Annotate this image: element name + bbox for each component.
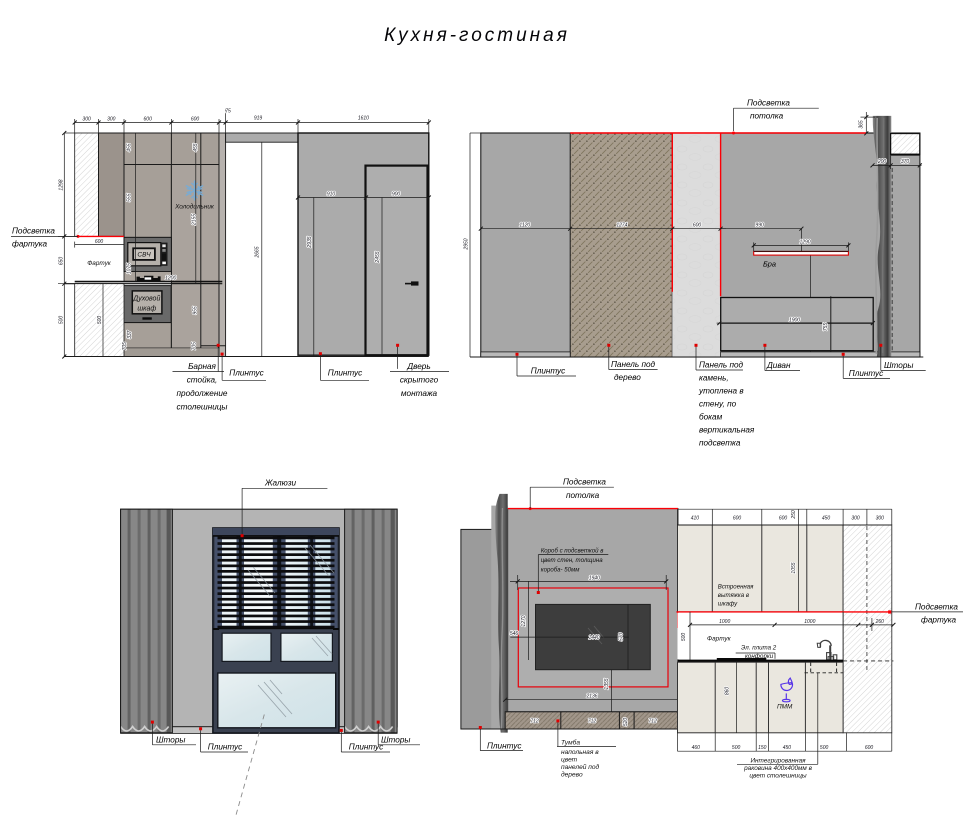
svg-text:камень,: камень, [699,373,729,382]
svg-text:2455: 2455 [375,251,381,263]
svg-text:шкаф: шкаф [137,306,156,313]
svg-text:2950: 2950 [464,238,470,250]
svg-text:365: 365 [859,120,865,129]
svg-text:1298: 1298 [59,179,65,190]
svg-text:600: 600 [733,516,742,522]
svg-text:250: 250 [791,510,797,520]
svg-text:стойка,: стойка, [187,376,218,385]
svg-text:1355: 1355 [604,678,610,689]
svg-text:Тумба: Тумба [561,738,580,746]
svg-text:300: 300 [851,516,860,522]
svg-text:раковина 400х400мм в: раковина 400х400мм в [743,765,812,772]
svg-text:2935: 2935 [307,236,313,248]
svg-text:Плинтус: Плинтус [849,369,883,378]
svg-text:дерево: дерево [614,373,641,382]
svg-text:Плинтус: Плинтус [208,743,242,752]
svg-text:потолка: потолка [566,491,600,500]
svg-text:1290: 1290 [799,240,810,246]
svg-text:утоплена в: утоплена в [698,386,744,395]
svg-text:Дверь: Дверь [406,362,430,371]
svg-text:300: 300 [107,116,116,122]
svg-text:2155: 2155 [192,214,198,226]
svg-text:напольная в: напольная в [561,749,599,756]
svg-text:370: 370 [901,159,910,165]
svg-text:260: 260 [875,619,885,625]
svg-text:650: 650 [59,257,65,266]
svg-text:Фартук: Фартук [707,636,732,643]
svg-text:дерево: дерево [561,770,583,778]
svg-text:860: 860 [725,687,731,696]
svg-text:панелей под: панелей под [561,763,600,771]
svg-text:410: 410 [691,516,700,522]
svg-text:Плинтус: Плинтус [531,367,565,376]
svg-text:Панель под: Панель под [699,360,744,369]
svg-text:Интегрированная: Интегрированная [750,757,806,764]
svg-text:570: 570 [619,633,625,642]
svg-text:Подсветка: Подсветка [12,227,55,236]
svg-text:1940: 1940 [589,575,600,581]
svg-text:Плинтус: Плинтус [487,741,521,750]
svg-text:2665: 2665 [255,246,261,258]
svg-text:455: 455 [193,143,199,152]
svg-text:150: 150 [758,745,767,751]
svg-text:Барная: Барная [188,362,216,371]
svg-text:1270: 1270 [521,615,527,626]
svg-text:цвет стен, толщина: цвет стен, толщина [541,557,604,564]
svg-text:600: 600 [779,516,788,522]
svg-text:712: 712 [530,718,539,724]
svg-text:цвет столешницы: цвет столешницы [749,772,806,779]
svg-text:Плинтус: Плинтус [328,369,362,378]
svg-text:600: 600 [865,745,874,751]
svg-text:бокам: бокам [699,412,723,421]
svg-text:Панель под: Панель под [611,360,656,369]
svg-text:вертикальная: вертикальная [699,425,755,434]
svg-text:фартука: фартука [921,616,957,625]
svg-text:1610: 1610 [358,116,369,122]
svg-text:500: 500 [97,316,103,325]
svg-text:продолжение: продолжение [177,389,228,398]
svg-text:1274: 1274 [616,223,627,229]
svg-text:Шторы: Шторы [884,361,913,370]
svg-text:500: 500 [732,745,741,751]
svg-text:шкафу: шкафу [718,600,738,607]
svg-text:1055: 1055 [791,562,797,573]
svg-text:потолка: потолка [750,112,784,121]
svg-text:ПММ: ПММ [777,703,793,710]
svg-text:600: 600 [191,116,200,122]
svg-text:1000: 1000 [719,619,730,625]
svg-text:712: 712 [649,718,658,724]
svg-text:2136: 2136 [585,694,597,700]
svg-text:Жалюзи: Жалюзи [264,479,297,488]
svg-text:цвет: цвет [561,756,578,763]
svg-text:Фартук: Фартук [87,260,112,267]
svg-text:Диван: Диван [766,361,791,370]
svg-text:900: 900 [392,192,401,198]
svg-text:705: 705 [122,342,128,351]
svg-text:500: 500 [820,745,829,751]
svg-text:500: 500 [59,316,65,325]
svg-text:столешницы: столешницы [177,403,228,412]
svg-text:546: 546 [510,631,519,637]
svg-text:Кухня-гостиная: Кухня-гостиная [384,25,570,46]
svg-text:600: 600 [144,116,153,122]
svg-text:955: 955 [192,306,198,315]
svg-text:1000: 1000 [804,619,815,625]
svg-text:1120: 1120 [519,223,530,229]
svg-text:555: 555 [127,193,133,202]
svg-text:200: 200 [877,159,887,165]
svg-text:подсветка: подсветка [699,438,741,447]
svg-text:СВЧ: СВЧ [137,252,151,259]
svg-text:Шторы: Шторы [381,735,410,744]
svg-text:вытяжка в: вытяжка в [718,592,749,599]
svg-text:Встроенная: Встроенная [718,584,754,591]
svg-text:337: 337 [127,330,133,339]
svg-text:монтажа: монтажа [401,389,438,398]
svg-text:стену, по: стену, по [699,399,737,408]
svg-text:712: 712 [588,718,597,724]
svg-text:Подсветка: Подсветка [915,602,958,611]
svg-text:455: 455 [127,143,133,152]
svg-text:Духовой: Духовой [132,295,160,303]
svg-text:705: 705 [192,342,198,351]
svg-text:Подсветка: Подсветка [747,98,790,107]
svg-text:75: 75 [225,109,231,115]
svg-text:755: 755 [823,323,829,332]
svg-text:919: 919 [254,116,263,122]
svg-text:скрытого: скрытого [400,376,439,385]
svg-text:450: 450 [822,516,831,522]
svg-text:450: 450 [783,745,792,751]
svg-text:1440: 1440 [588,635,599,641]
svg-text:1900: 1900 [789,317,800,323]
svg-text:460: 460 [692,745,701,751]
svg-text:910: 910 [327,192,336,198]
svg-text:500: 500 [681,633,687,642]
svg-text:520: 520 [623,718,629,727]
svg-text:600: 600 [95,239,104,245]
svg-text:Холодильник: Холодильник [174,203,215,211]
svg-text:Эл. плита 2: Эл. плита 2 [741,644,777,651]
svg-text:Подсветка: Подсветка [563,477,606,486]
svg-text:Короб с подсветкой в: Короб с подсветкой в [541,548,604,555]
svg-text:1200: 1200 [165,275,176,281]
svg-text:фартука: фартука [12,239,48,248]
svg-text:600: 600 [693,223,702,229]
svg-text:Плинтус: Плинтус [229,369,263,378]
svg-text:300: 300 [876,516,885,522]
svg-text:Шторы: Шторы [156,735,185,744]
svg-text:300: 300 [82,116,91,122]
svg-text:1075: 1075 [127,263,133,274]
svg-text:короба- 50мм: короба- 50мм [541,567,581,574]
svg-text:Бра: Бра [763,260,776,269]
svg-text:990: 990 [755,223,764,229]
